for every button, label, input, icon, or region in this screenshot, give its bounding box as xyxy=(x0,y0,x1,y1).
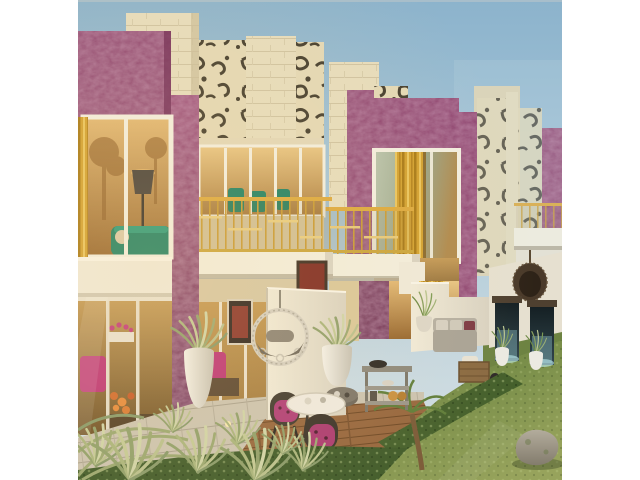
photo-frame xyxy=(0,0,640,480)
letterbox-left xyxy=(0,0,78,480)
letterbox-right xyxy=(562,0,640,480)
townhouse-rendering xyxy=(78,0,562,480)
sunlight-wash xyxy=(78,0,562,480)
